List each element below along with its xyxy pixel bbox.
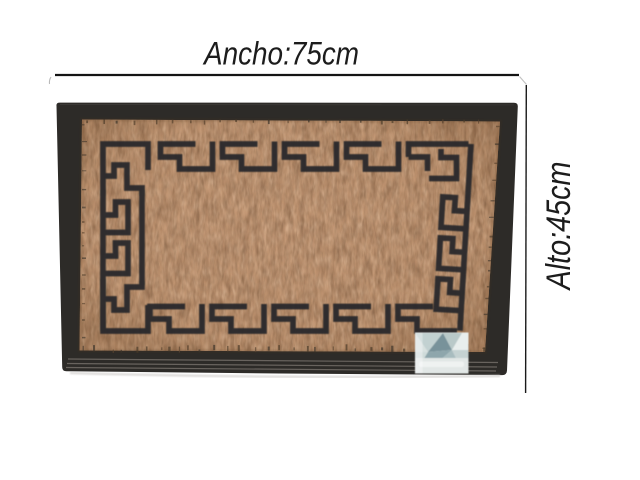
svg-text:Ancho:75cm: Ancho:75cm <box>202 36 359 72</box>
svg-text:Alto:45cm: Alto:45cm <box>540 162 578 292</box>
